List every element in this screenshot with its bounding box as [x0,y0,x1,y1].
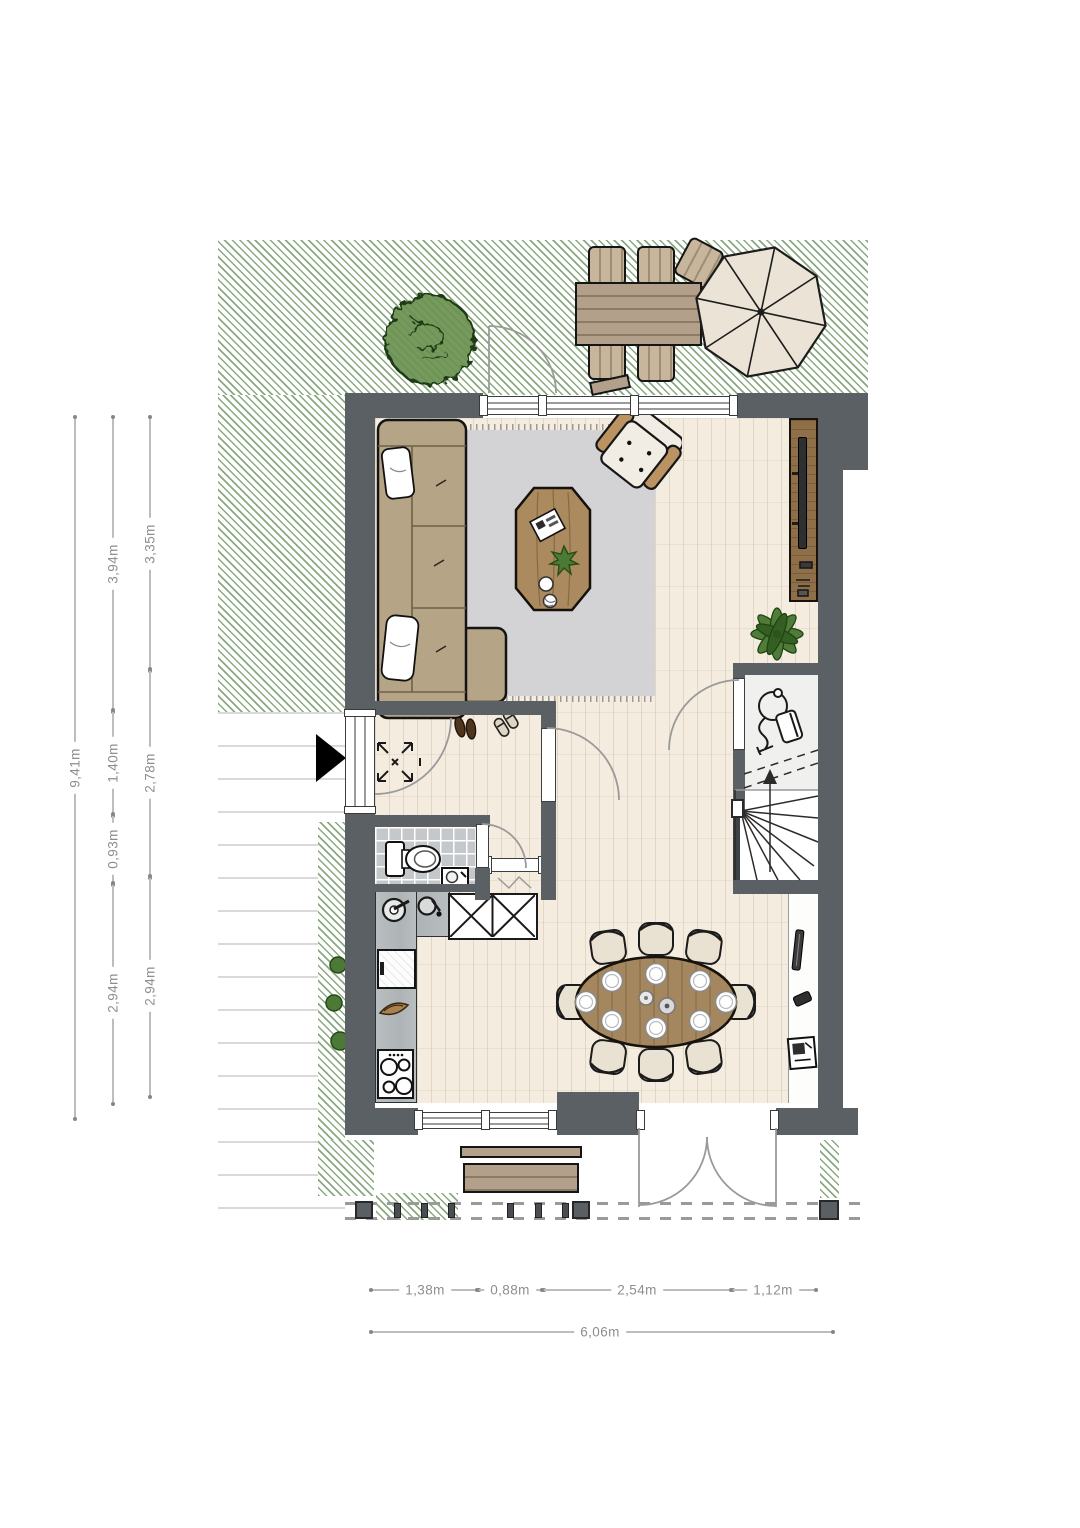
wall-right-notch [843,418,868,470]
shoes [448,710,530,744]
cooktop-burners [378,1050,413,1098]
wall-closet-west-lower [733,750,745,815]
window-post [630,395,639,416]
wall-top-left [345,393,483,418]
garden-chair [637,246,675,286]
floor-plan-scene: 9,41m 3,94m 1,40m 0,93m 2,94m 3,35m 2,78… [0,0,1080,1528]
window-post [481,1110,490,1130]
window-top [483,396,737,415]
sideboard-items [786,900,820,1100]
wall-left-upper [345,393,375,715]
front-door-band [345,715,375,812]
dim-left-total-label: 9,41m [66,742,85,794]
outdoor-bench-seat [463,1163,579,1193]
window-post [729,395,738,416]
fence-post-small [535,1203,542,1218]
parasol [693,240,835,386]
wall-stairs-west [733,815,740,880]
wall-toilet-south [375,884,490,892]
wall-stairs-south [733,880,818,894]
dim-label: 0,93m [104,823,123,875]
garden-chair [588,246,626,286]
window-post [538,395,547,416]
armchair [590,412,682,502]
fence-post-small [421,1203,428,1218]
dim-label: 0,88m [484,1281,536,1300]
hall-door-band [541,728,556,802]
fence-post-small [562,1203,569,1218]
window-post [479,395,488,416]
garden-patch-fence-left [376,1193,458,1220]
toilet-fixtures [378,836,478,890]
tv-stand-mark [792,472,798,475]
kitchen-sink [378,894,444,928]
window-post [414,1110,423,1130]
wall-bottom-right [776,1108,858,1135]
door-post [344,709,376,717]
fruit-bowl [374,994,416,1024]
garden-table [575,282,702,346]
vacuum-cleaner-icon [748,685,810,755]
door-post [770,1110,779,1130]
wall-closet-north [733,663,818,675]
dim-label: 2,94m [104,967,123,1019]
dim-label: 3,35m [141,518,160,570]
window-post [548,1110,557,1130]
tall-cabinets [448,893,538,940]
threshold [490,858,541,872]
fence-post [355,1201,373,1219]
fence-post [572,1201,590,1219]
wall-hall-right-upper [541,701,556,730]
door-post [636,1110,645,1130]
stairs-floor [735,790,818,880]
fence-post [819,1200,839,1220]
dim-label: 1,40m [104,737,123,789]
potted-plant [743,600,811,668]
wall-hall-right-lower [541,802,556,900]
dining-set [548,918,764,1086]
fence-post-small [448,1203,455,1218]
dim-label: 3,94m [104,538,123,590]
garden-hatch-left [218,395,345,712]
coffee-table [508,484,598,614]
wall-hall-top [375,701,555,715]
garden-strip-bottom-right [820,1140,839,1198]
wall-left-lower [345,812,375,1135]
closet-door-band [733,678,745,750]
wall-toilet-east-upper [475,815,490,824]
tv-screen [798,437,807,549]
dim-label: 2,54m [611,1281,663,1300]
toilet-door-band [476,824,489,868]
dim-label: 2,78m [141,747,160,799]
outdoor-bench-back [460,1146,582,1158]
wall-toilet-north [375,815,490,827]
wall-bottom-middle [557,1092,639,1135]
entrance-arrow [316,734,346,782]
dim-label: 2,94m [141,960,160,1012]
garden-tree [374,284,486,396]
tv-stand-mark [792,522,798,525]
wall-top-right [737,393,868,418]
garden-chair [588,340,626,380]
dim-label: 1,12m [747,1281,799,1300]
cabinet-decor [792,558,818,600]
sofa [376,416,508,722]
wall-bottom-left [345,1108,418,1135]
door-post [344,806,376,814]
dim-bottom-total-label: 6,06m [574,1323,626,1342]
garden-chair [637,342,675,382]
fence-post-small [394,1203,401,1218]
garden-patch-bottom-left [318,1140,374,1196]
dim-label: 1,38m [399,1281,451,1300]
fence-post-small [507,1203,514,1218]
refrigerator-handle [380,962,384,975]
wall-right [818,418,843,1110]
